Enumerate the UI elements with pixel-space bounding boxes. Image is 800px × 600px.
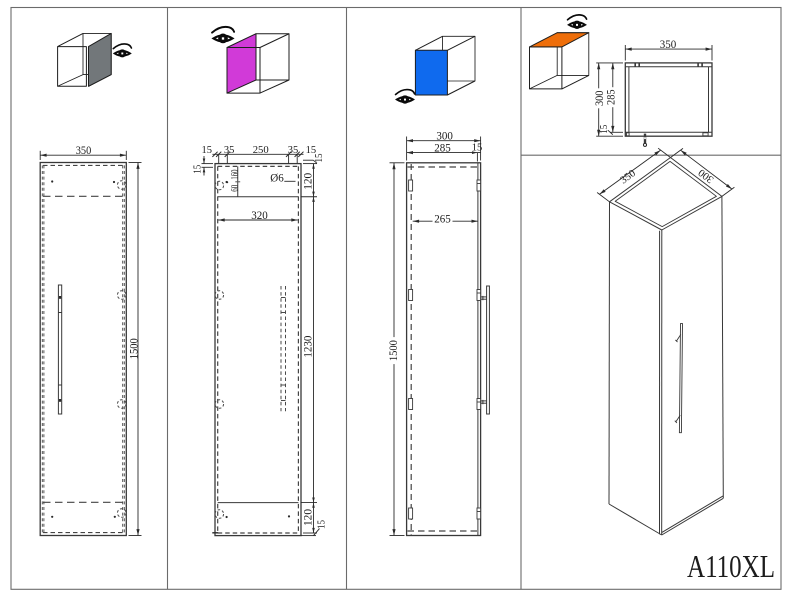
svg-text:15: 15 [315, 520, 327, 529]
svg-text:Ø6: Ø6 [270, 173, 284, 185]
svg-text:35: 35 [224, 144, 235, 156]
svg-text:285: 285 [434, 142, 451, 154]
svg-text:A110XL: A110XL [687, 549, 775, 584]
svg-text:300: 300 [594, 90, 606, 106]
svg-text:15: 15 [201, 144, 212, 156]
svg-text:350: 350 [660, 39, 677, 51]
svg-text:300: 300 [436, 131, 453, 143]
svg-text:15: 15 [191, 164, 203, 173]
svg-text:250: 250 [253, 144, 269, 156]
svg-text:1500: 1500 [128, 338, 140, 359]
svg-text:15: 15 [472, 142, 483, 154]
svg-text:1500: 1500 [388, 340, 400, 361]
svg-text:160: 160 [230, 170, 241, 180]
svg-text:1230: 1230 [303, 335, 315, 357]
svg-text:350: 350 [76, 145, 92, 157]
svg-text:60: 60 [230, 185, 241, 192]
svg-text:120: 120 [303, 509, 315, 526]
svg-text:120: 120 [302, 173, 314, 190]
svg-text:265: 265 [434, 213, 451, 225]
svg-text:35: 35 [288, 144, 299, 156]
svg-text:320: 320 [251, 210, 268, 222]
svg-text:15: 15 [598, 124, 610, 133]
svg-text:15: 15 [313, 153, 325, 162]
svg-text:285: 285 [605, 89, 617, 105]
